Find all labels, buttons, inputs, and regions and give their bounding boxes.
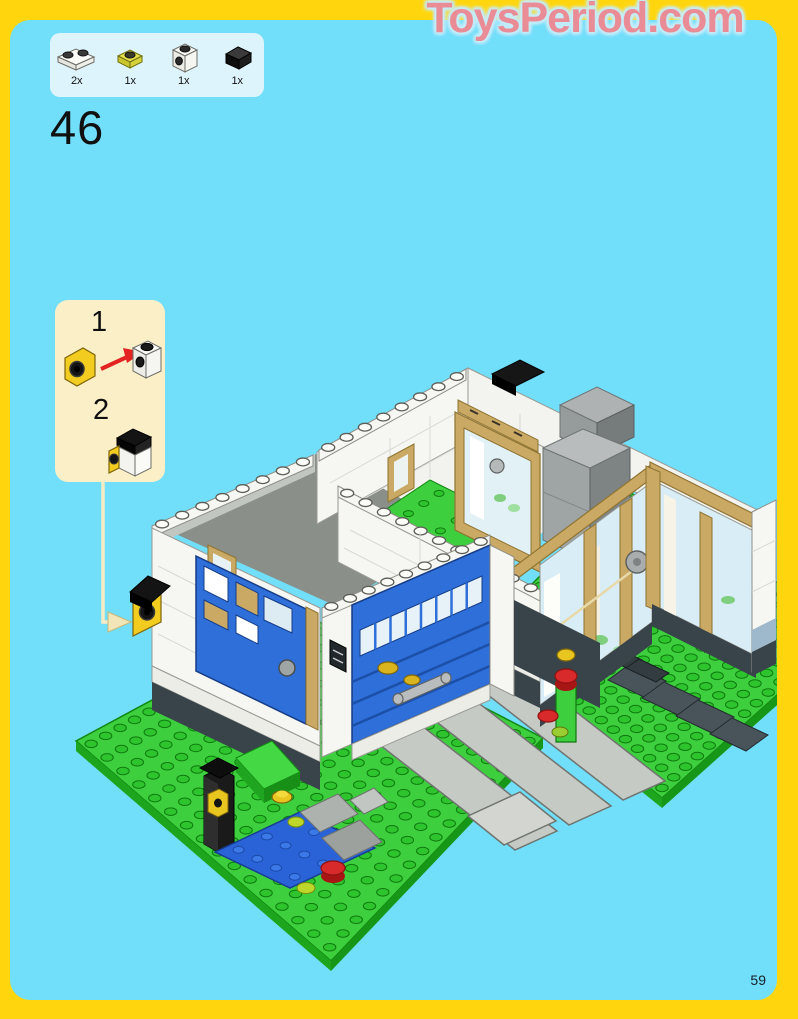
part-item-yellow-plate: 1x	[106, 40, 154, 87]
watermark: ToysPeriod.com	[372, 0, 798, 43]
page-number: 59	[750, 972, 766, 988]
part-qty: 2x	[71, 75, 83, 87]
substep-2-diagram	[103, 426, 159, 480]
white-plate-1x2-icon	[54, 40, 100, 74]
substep-callout-box: 1 2	[55, 300, 165, 482]
leader-arrow	[103, 482, 131, 632]
black-slope-1x1-icon	[214, 40, 260, 74]
part-qty: 1x	[231, 75, 243, 87]
yellow-plate-1x1-icon	[107, 40, 153, 74]
part-qty: 1x	[178, 75, 190, 87]
white-headlight-brick-icon	[161, 40, 207, 74]
substep-1-diagram	[57, 336, 163, 392]
part-item-black-slope: 1x	[213, 40, 261, 87]
page-inner-background	[10, 20, 777, 1000]
instruction-page: { "watermark": { "text": "ToysPeriod.com…	[0, 0, 798, 1019]
parts-callout-panel: 2x 1x 1x 1x	[50, 33, 264, 97]
substep-2-label: 2	[93, 394, 109, 427]
part-qty: 1x	[124, 75, 136, 87]
corner-pillar	[752, 500, 776, 676]
instruction-illustration	[10, 20, 777, 1000]
part-item-headlight-brick: 1x	[160, 40, 208, 87]
step-number: 46	[50, 100, 104, 155]
substep-1-label: 1	[91, 306, 107, 339]
part-item-white-plate: 2x	[53, 40, 101, 87]
